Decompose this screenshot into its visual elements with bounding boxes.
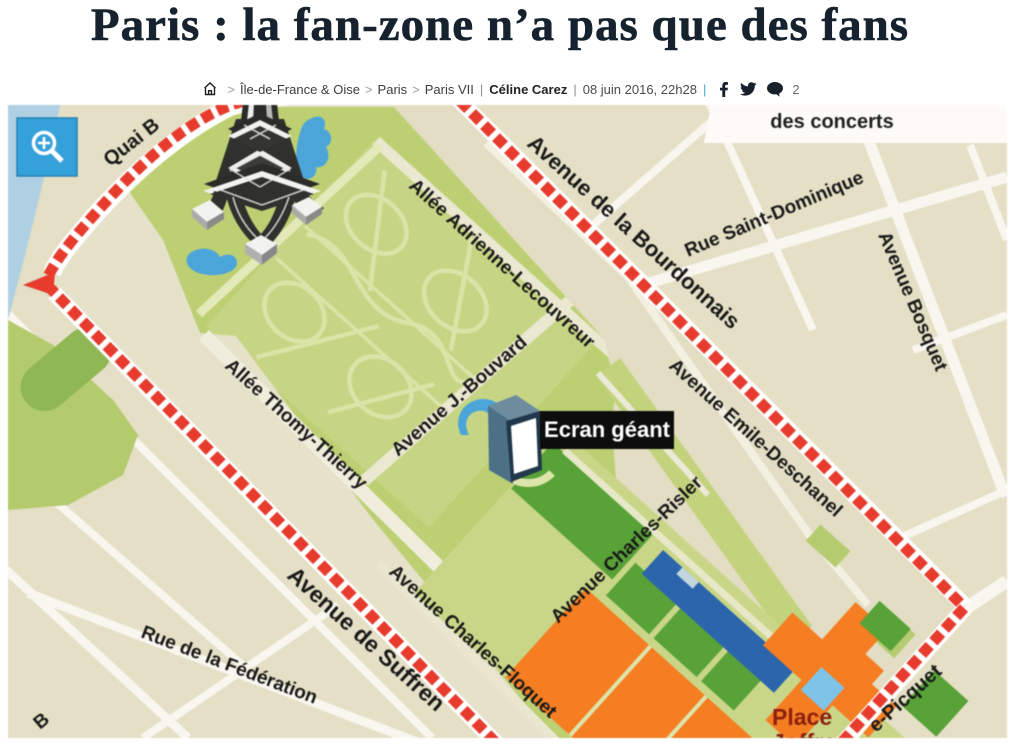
svg-text:Place: Place (772, 704, 832, 730)
svg-text:Ecran géant: Ecran géant (544, 417, 671, 442)
svg-text:des concerts: des concerts (770, 111, 893, 133)
svg-text:Joffre: Joffre (772, 729, 836, 738)
